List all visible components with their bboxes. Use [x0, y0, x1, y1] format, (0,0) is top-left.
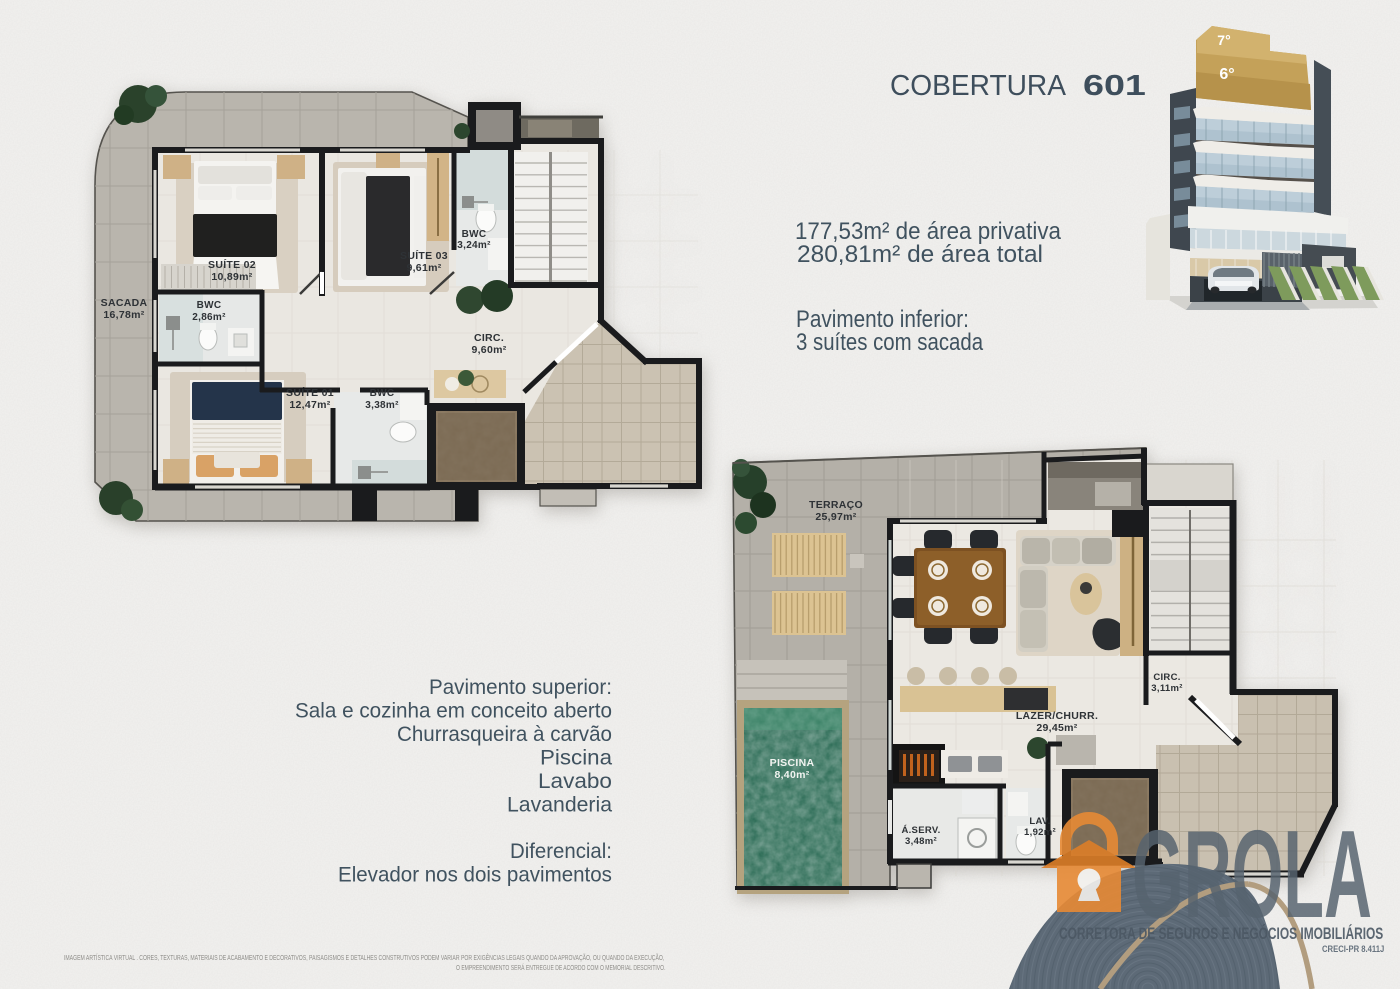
- svg-text:Lavanderia: Lavanderia: [507, 794, 612, 817]
- svg-text:7°: 7°: [1217, 32, 1230, 48]
- svg-text:3,24m²: 3,24m²: [457, 240, 491, 251]
- svg-text:LAZER/CHURR.: LAZER/CHURR.: [1016, 710, 1098, 722]
- svg-text:280,81m² de área total: 280,81m² de área total: [797, 241, 1043, 268]
- svg-text:Sala e cozinha em conceito abe: Sala e cozinha em conceito aberto: [295, 699, 612, 722]
- svg-text:601: 601: [1083, 70, 1146, 102]
- svg-text:2,86m²: 2,86m²: [192, 312, 226, 323]
- svg-text:BWC: BWC: [462, 229, 487, 240]
- svg-text:Lavabo: Lavabo: [538, 769, 612, 793]
- svg-text:Churrasqueira à carvão: Churrasqueira à carvão: [397, 723, 612, 746]
- svg-text:29,45m²: 29,45m²: [1036, 722, 1077, 734]
- svg-text:TERRAÇO: TERRAÇO: [809, 499, 863, 511]
- svg-text:Diferencial:: Diferencial:: [510, 840, 612, 863]
- svg-text:O EMPREENDIMENTO SERÁ ENTREGUE: O EMPREENDIMENTO SERÁ ENTREGUE DE ACORDO…: [456, 962, 666, 973]
- svg-text:3,48m²: 3,48m²: [905, 836, 937, 847]
- svg-text:9,60m²: 9,60m²: [471, 344, 506, 356]
- svg-text:SUÍTE 01: SUÍTE 01: [286, 386, 334, 399]
- svg-text:PISCINA: PISCINA: [770, 757, 815, 769]
- svg-text:12,47m²: 12,47m²: [289, 399, 330, 411]
- svg-text:GROLA: GROLA: [1132, 806, 1372, 944]
- svg-text:25,97m²: 25,97m²: [815, 511, 856, 523]
- svg-text:16,78m²: 16,78m²: [103, 309, 144, 321]
- svg-text:LAV.: LAV.: [1029, 816, 1050, 827]
- svg-text:177,53m² de área privativa: 177,53m² de área privativa: [795, 217, 1061, 244]
- svg-text:8,40m²: 8,40m²: [774, 769, 809, 781]
- svg-text:3 suítes com sacada: 3 suítes com sacada: [796, 328, 984, 355]
- svg-text:COBERTURA: COBERTURA: [890, 70, 1066, 102]
- svg-text:SACADA: SACADA: [101, 297, 148, 309]
- svg-text:BWC: BWC: [197, 300, 222, 311]
- svg-text:SUÍTE 03: SUÍTE 03: [400, 249, 448, 262]
- svg-text:9,61m²: 9,61m²: [406, 262, 441, 274]
- svg-text:SUÍTE 02: SUÍTE 02: [208, 258, 256, 271]
- svg-text:6°: 6°: [1219, 66, 1234, 83]
- svg-text:CORRETORA DE SEGUROS E NEGÓCIO: CORRETORA DE SEGUROS E NEGÓCIOS IMOBILIÁ…: [1059, 923, 1384, 944]
- svg-text:CIRC.: CIRC.: [474, 332, 504, 344]
- svg-text:Pavimento superior:: Pavimento superior:: [429, 676, 612, 699]
- svg-text:IMAGEM ARTÍSTICA VIRTUAL . COR: IMAGEM ARTÍSTICA VIRTUAL . CORES, TEXTUR…: [64, 952, 664, 963]
- svg-text:Á.SERV.: Á.SERV.: [901, 825, 940, 836]
- svg-text:BWC: BWC: [370, 388, 395, 399]
- svg-text:Piscina: Piscina: [540, 745, 613, 769]
- svg-text:10,89m²: 10,89m²: [211, 271, 252, 283]
- svg-text:Elevador nos dois pavimentos: Elevador nos dois pavimentos: [338, 863, 612, 886]
- svg-text:CRECI-PR 8.411J: CRECI-PR 8.411J: [1322, 943, 1384, 954]
- svg-text:1,92m²: 1,92m²: [1024, 827, 1056, 838]
- svg-text:3,38m²: 3,38m²: [365, 400, 399, 411]
- svg-text:CIRC.: CIRC.: [1153, 672, 1180, 683]
- svg-text:3,11m²: 3,11m²: [1151, 683, 1182, 694]
